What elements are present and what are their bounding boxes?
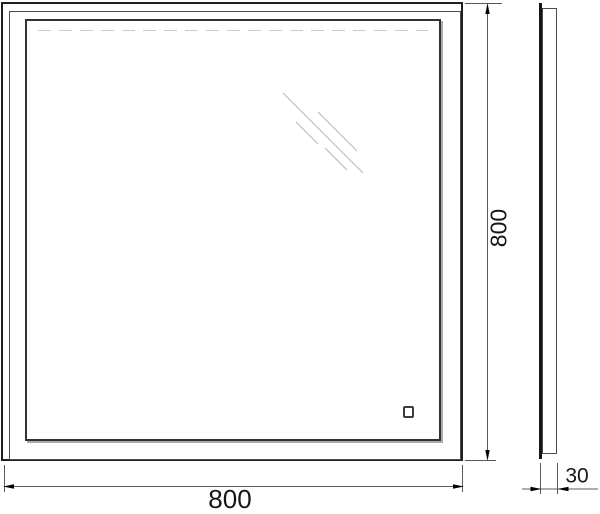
width-dimension-label: 800 bbox=[208, 486, 251, 512]
height-dimension-label: 800 bbox=[488, 209, 511, 247]
depth-dimension-label: 30 bbox=[565, 466, 588, 487]
depth-dim-arrow-left bbox=[531, 487, 542, 491]
mirror-inner-frame bbox=[25, 19, 441, 441]
side-view-body bbox=[542, 8, 557, 454]
mirror-technical-drawing: 800 800 30 bbox=[0, 0, 600, 514]
height-dim-arrow-up bbox=[485, 3, 489, 14]
touch-sensor-button bbox=[403, 406, 414, 418]
width-dim-arrow-right bbox=[453, 484, 464, 488]
height-dim-arrow-down bbox=[485, 450, 489, 461]
width-dim-arrow-left bbox=[3, 484, 14, 488]
